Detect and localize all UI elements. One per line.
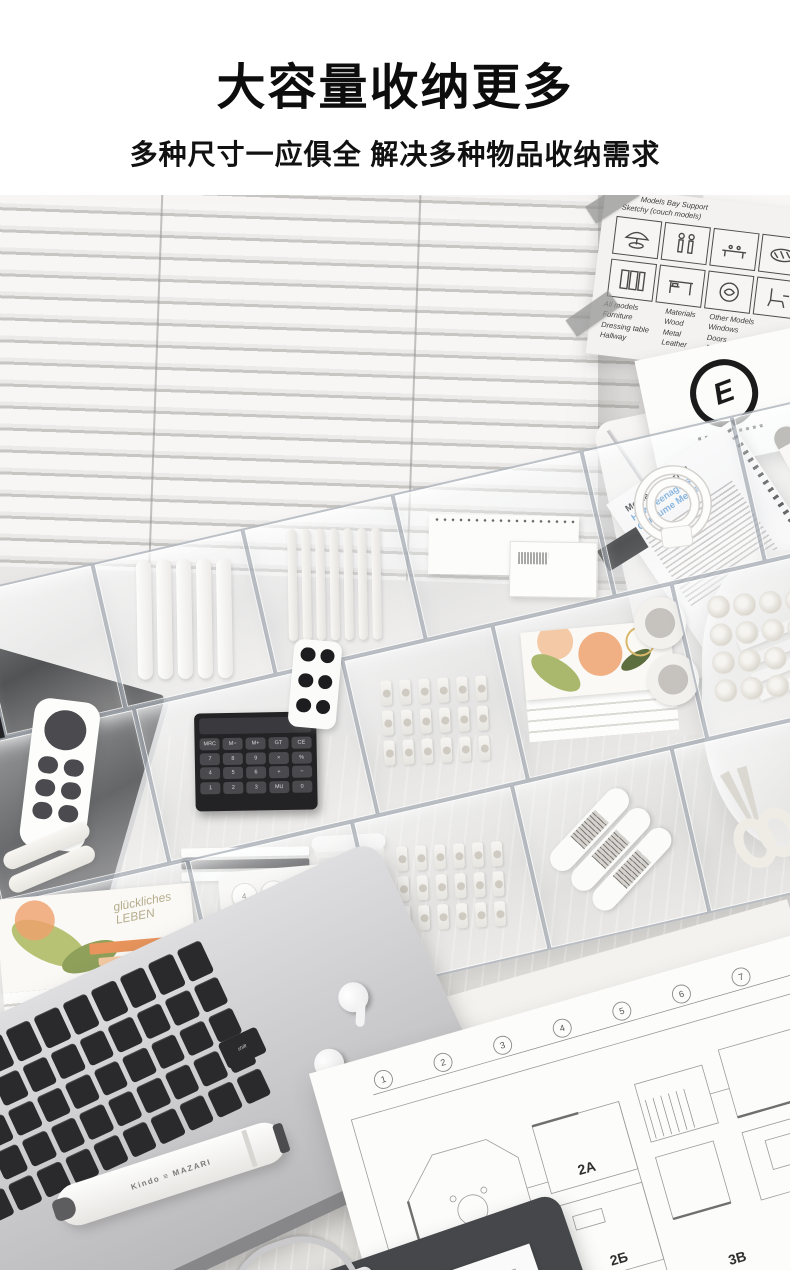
banner-title: 大容量收纳更多 [0, 48, 790, 119]
airpod-right [333, 977, 373, 1017]
grid-number: 4 [558, 1023, 566, 1034]
marker-cap-grid [706, 588, 790, 703]
grid-number: 6 [678, 989, 686, 1000]
chair-doodle [753, 277, 790, 320]
rope-handle [770, 422, 790, 528]
remote-dpad [42, 708, 89, 753]
book-cover-title: glückliches LEBEN [112, 888, 186, 927]
white-remote [287, 638, 342, 730]
product-banner: 大容量收纳更多 多种尺寸一应俱全 解决多种物品收纳需求 Models Bay S… [0, 0, 790, 1270]
scissors-icon [687, 742, 790, 889]
grid-number: 1 [380, 1074, 388, 1085]
plate-doodle [704, 271, 754, 314]
table-items-doodle [709, 228, 759, 271]
desk-photo: Models Bay Support Sketchy (couch models… [0, 195, 790, 1270]
jump-rope [783, 412, 790, 530]
desk-doodle [655, 265, 705, 308]
banner-subtitle: 多种尺寸一应俱全 解决多种物品收纳需求 [0, 133, 790, 173]
grid-number: 7 [737, 971, 745, 982]
wardrobe-doodle [607, 259, 657, 302]
cable-coil [612, 442, 735, 570]
marker-bundle [135, 558, 232, 680]
banner-header: 大容量收纳更多 多种尺寸一应俱全 解决多种物品收纳需求 [0, 0, 790, 195]
grid-number: 2 [439, 1057, 447, 1068]
white-box [509, 541, 598, 599]
logo-letter: E [709, 374, 739, 413]
pen-brand: Kindo [130, 1173, 161, 1191]
remote-buttons [22, 754, 95, 825]
basket-doodle [758, 234, 790, 277]
barcode-icon [518, 552, 548, 565]
sketch-note-group: Materials Wood Metal Leather [661, 307, 696, 351]
glue-sticks [545, 783, 677, 916]
pen-maker: MAZARI [171, 1157, 212, 1178]
pen-bundle [287, 528, 382, 642]
orange-blob [577, 630, 625, 678]
blind-cord [148, 195, 164, 572]
pen-clip-grid [380, 675, 490, 765]
pen-brand-text: Kindo ≡ MAZARI [130, 1157, 213, 1191]
room-label: 2Б [608, 1248, 630, 1268]
airpod-stem [355, 1001, 365, 1027]
pen-clip-grid [396, 841, 506, 931]
mushroom-lamp-doodle [612, 216, 662, 259]
room-label: 3В [726, 1248, 748, 1268]
grid-number: 5 [618, 1006, 626, 1017]
calculator-keys: MRCM−M+GTCE789×%456+−123MU0 [199, 736, 312, 793]
room-label: 2A [576, 1158, 598, 1178]
bottle-figures-doodle [661, 222, 711, 265]
grid-number: 3 [499, 1040, 507, 1051]
